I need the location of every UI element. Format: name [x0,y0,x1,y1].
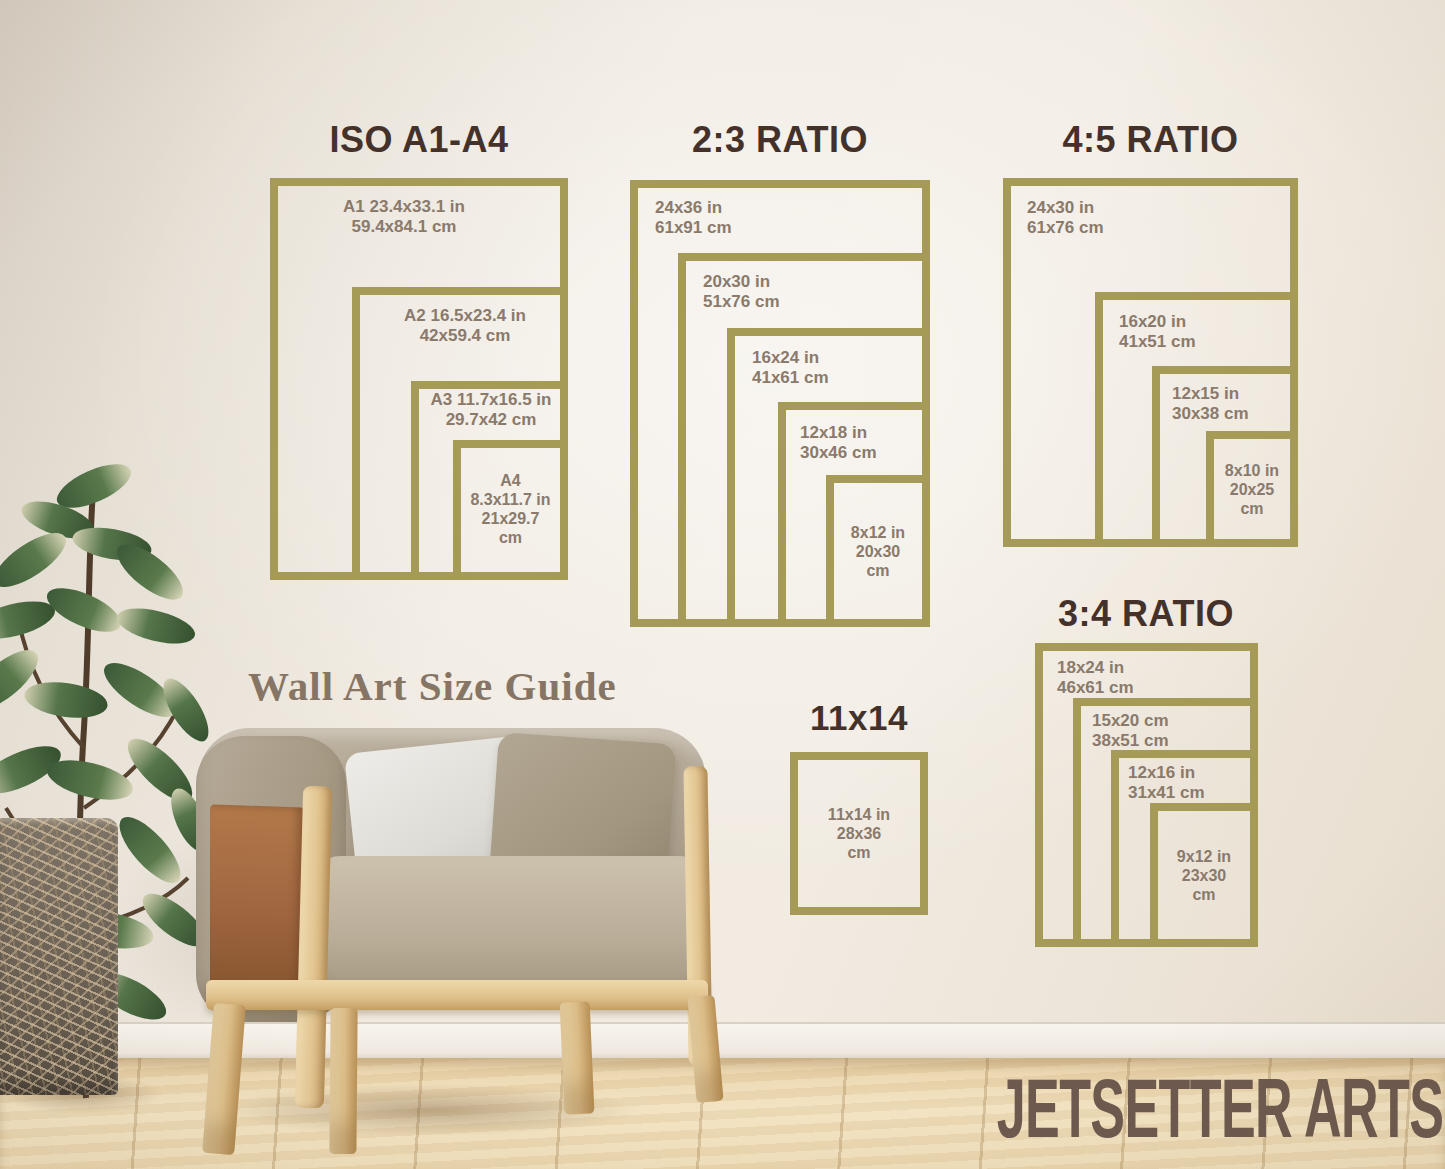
frame-label-15x20: 15x20 cm 38x51 cm [1092,711,1169,751]
chair-leg [329,1008,357,1154]
frame-label-16x20: 16x20 in 41x51 cm [1119,312,1196,352]
frame-label-a4: A4 8.3x11.7 in 21x29.7 cm [461,472,560,548]
frame-label-11x14: 11x14 in 28x36 cm [798,806,920,863]
guide-caption: Wall Art Size Guide [248,662,617,710]
frame-label-a1: A1 23.4x33.1 in 59.4x84.1 cm [286,197,522,237]
frame-label-12x18: 12x18 in 30x46 cm [800,423,877,463]
frame-label-9x12: 9x12 in 23x30 cm [1158,848,1250,905]
frame-label-12x15: 12x15 in 30x38 cm [1172,384,1249,424]
chair-front-rail [206,980,708,1010]
frame-label-16x24: 16x24 in 41x61 cm [752,348,829,388]
frame-label-20x30: 20x30 in 51x76 cm [703,272,780,312]
chair-leather-side-panel [210,804,306,993]
chair-leg [560,1001,595,1114]
frame-label-a2: A2 16.5x23.4 in 42x59.4 cm [365,306,565,346]
section-title-2-3: 2:3 RATIO [630,122,930,158]
frame-label-24x36: 24x36 in 61x91 cm [655,198,732,238]
section-title-iso: ISO A1-A4 [270,122,568,158]
section-title-3-4: 3:4 RATIO [996,596,1296,632]
frame-label-8x10: 8x10 in 20x25 cm [1214,462,1290,519]
woven-basket-pot [0,818,118,1095]
section-title-11x14: 11x14 [759,700,959,735]
frame-label-12x16: 12x16 in 31x41 cm [1128,763,1205,803]
frame-label-8x12: 8x12 in 20x30 cm [834,524,922,581]
brand-watermark: JETSETTER ARTS [996,1076,1443,1142]
frame-label-24x30: 24x30 in 61x76 cm [1027,198,1104,238]
frame-label-18x24: 18x24 in 46x61 cm [1057,658,1134,698]
frame-label-a3: A3 11.7x16.5 in 29.7x42 cm [420,390,562,430]
room-scene: ISO A1-A4 A1 23.4x33.1 in 59.4x84.1 cm A… [0,0,1445,1169]
section-title-4-5: 4:5 RATIO [1003,122,1298,158]
